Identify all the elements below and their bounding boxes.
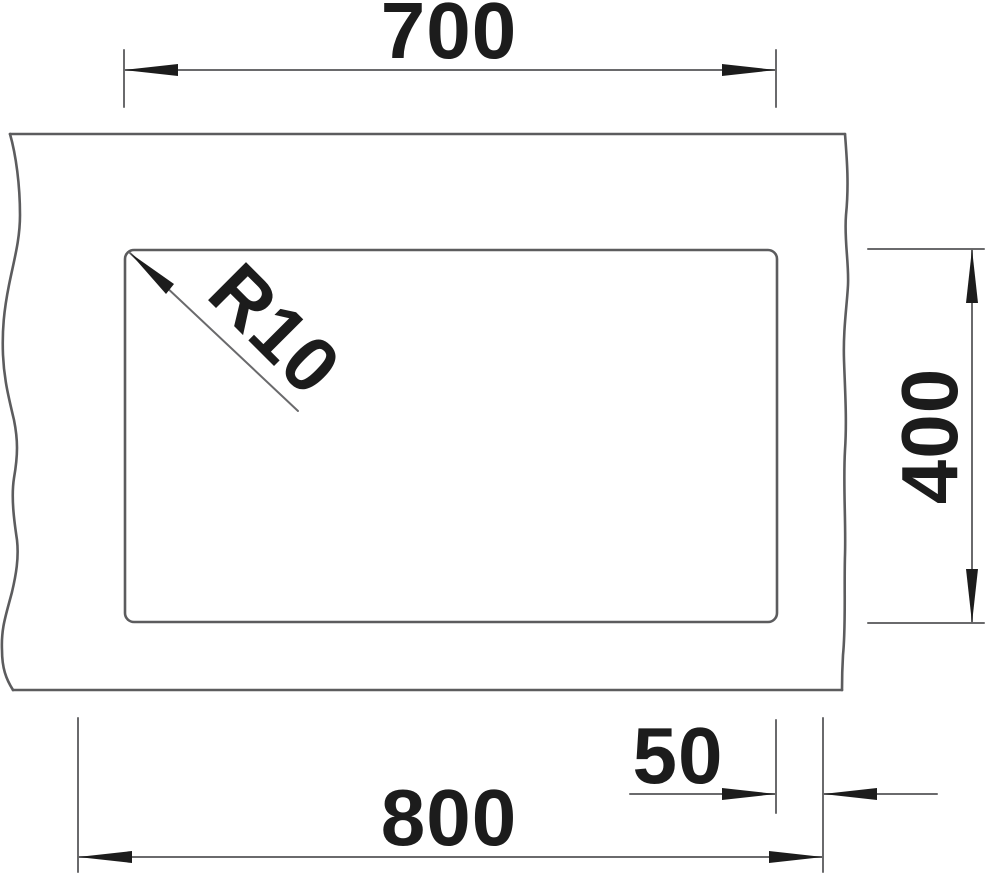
dimension-labels: 700 400 800 50 R10 [192, 0, 974, 862]
dim-bottom-arrow-left [78, 851, 132, 863]
panel-left-break-line [2, 134, 20, 690]
dim-label-right-height: 400 [885, 368, 974, 504]
dim-bottom-arrow-right [769, 851, 823, 863]
dim-label-bottom-width: 800 [381, 773, 517, 862]
dim-label-top-width: 700 [381, 0, 517, 75]
dim-label-corner-radius: R10 [192, 246, 358, 412]
dim-top-arrow-right [722, 64, 776, 76]
dim-right-arrow-bottom [966, 569, 978, 623]
panel-outlines [2, 134, 848, 690]
dim-label-bottom-offset: 50 [633, 711, 724, 800]
radius-leader-arrow [130, 253, 174, 294]
technical-drawing-canvas: 700 400 800 50 R10 [0, 0, 992, 876]
drawing-stage: 700 400 800 50 R10 [0, 0, 992, 876]
dim-offset-arrow-left [722, 788, 776, 800]
arrowheads [78, 64, 978, 863]
dim-right-arrow-top [966, 249, 978, 303]
dim-top-arrow-left [124, 64, 178, 76]
dim-offset-arrow-right [823, 788, 877, 800]
panel-right-break-line [842, 134, 848, 690]
